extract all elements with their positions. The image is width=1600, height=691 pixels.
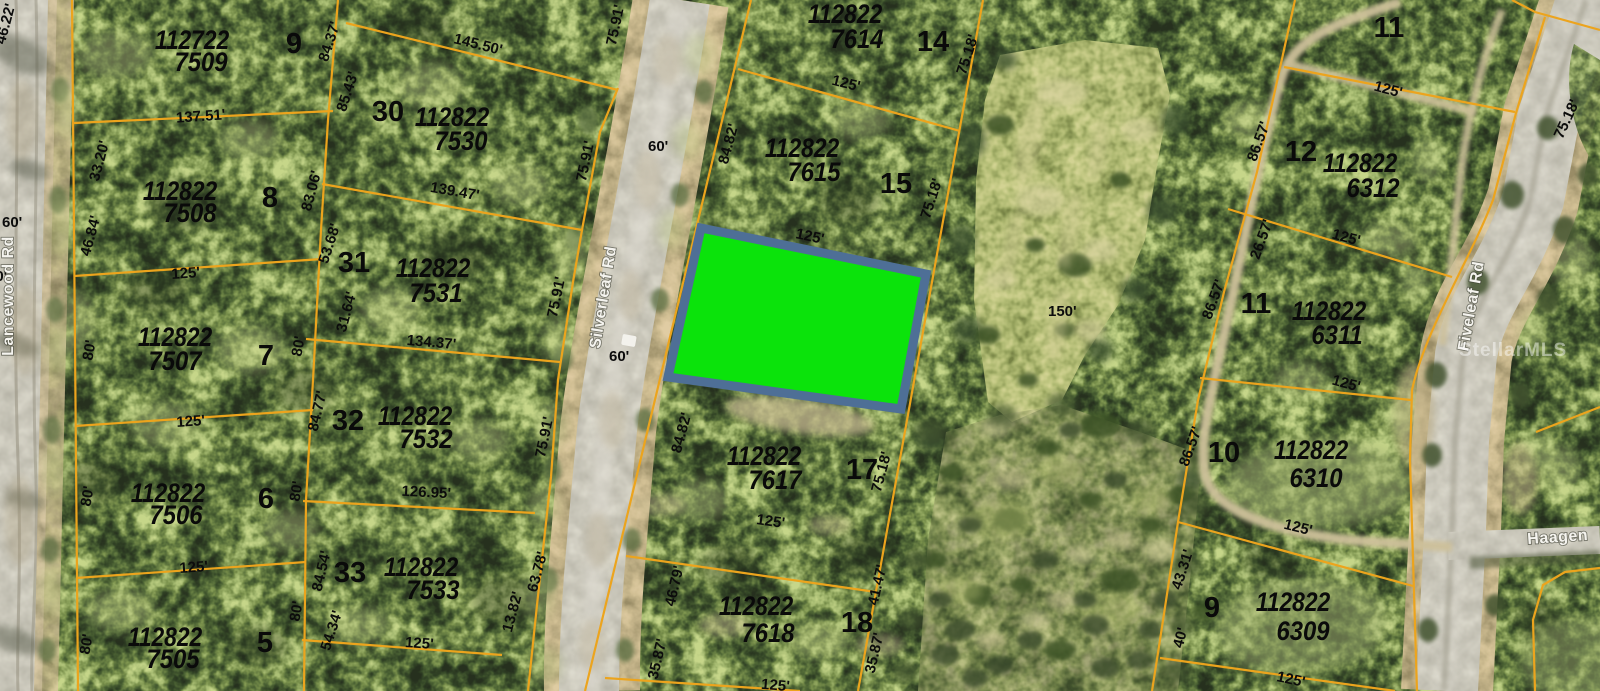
svg-text:7507: 7507 xyxy=(148,347,203,377)
svg-text:7531: 7531 xyxy=(409,279,462,309)
svg-text:7530: 7530 xyxy=(434,127,487,157)
svg-text:125': 125' xyxy=(404,634,434,653)
svg-text:80': 80' xyxy=(77,485,97,508)
svg-text:StellarMLS: StellarMLS xyxy=(1459,340,1567,361)
svg-text:60': 60' xyxy=(2,214,22,231)
svg-text:7614: 7614 xyxy=(830,25,883,55)
svg-text:80': 80' xyxy=(76,633,96,656)
svg-text:7508: 7508 xyxy=(163,199,217,229)
svg-text:112822: 112822 xyxy=(1274,435,1348,465)
svg-text:8: 8 xyxy=(262,182,278,214)
svg-text:7617: 7617 xyxy=(748,466,803,496)
svg-text:5: 5 xyxy=(257,627,273,659)
svg-text:33: 33 xyxy=(334,557,366,589)
svg-text:60': 60' xyxy=(648,138,668,155)
svg-text:150': 150' xyxy=(1048,303,1077,320)
svg-text:12: 12 xyxy=(1285,136,1317,168)
svg-text:6: 6 xyxy=(258,483,274,515)
svg-text:7533: 7533 xyxy=(406,576,459,606)
svg-text:125': 125' xyxy=(171,264,201,283)
svg-text:80': 80' xyxy=(288,335,308,358)
svg-text:Lancewood Rd: Lancewood Rd xyxy=(0,236,17,356)
svg-text:7618: 7618 xyxy=(741,619,795,649)
svg-text:112822: 112822 xyxy=(719,591,793,621)
svg-text:7: 7 xyxy=(258,340,274,372)
svg-text:6312: 6312 xyxy=(1346,174,1399,204)
svg-text:125': 125' xyxy=(176,412,206,431)
svg-text:80': 80' xyxy=(286,600,306,623)
svg-text:31: 31 xyxy=(338,247,370,279)
svg-text:80': 80' xyxy=(286,480,306,503)
svg-text:137.51': 137.51' xyxy=(175,106,226,126)
svg-text:112822: 112822 xyxy=(1256,587,1330,617)
svg-text:7509: 7509 xyxy=(174,48,228,78)
svg-text:15: 15 xyxy=(880,168,912,200)
svg-text:6311: 6311 xyxy=(1311,321,1362,351)
svg-text:80': 80' xyxy=(79,339,99,362)
svg-text:10: 10 xyxy=(1208,437,1240,469)
svg-text:11: 11 xyxy=(1374,12,1405,44)
svg-text:126.95': 126.95' xyxy=(401,483,451,503)
svg-text:125': 125' xyxy=(179,558,209,577)
svg-text:11: 11 xyxy=(1241,288,1272,320)
svg-text:9: 9 xyxy=(1204,592,1220,624)
svg-text:32: 32 xyxy=(332,405,364,437)
svg-text:9: 9 xyxy=(286,28,302,60)
svg-text:6310: 6310 xyxy=(1289,464,1342,494)
svg-text:60': 60' xyxy=(609,348,629,365)
svg-text:6309: 6309 xyxy=(1276,617,1330,647)
svg-text:7506: 7506 xyxy=(149,501,203,531)
svg-text:7615: 7615 xyxy=(787,158,841,188)
svg-text:7532: 7532 xyxy=(399,425,452,455)
svg-text:18: 18 xyxy=(841,607,873,639)
svg-text:30: 30 xyxy=(372,96,404,128)
svg-text:14: 14 xyxy=(917,26,949,58)
svg-text:125': 125' xyxy=(760,676,790,691)
svg-text:7505: 7505 xyxy=(146,645,200,675)
